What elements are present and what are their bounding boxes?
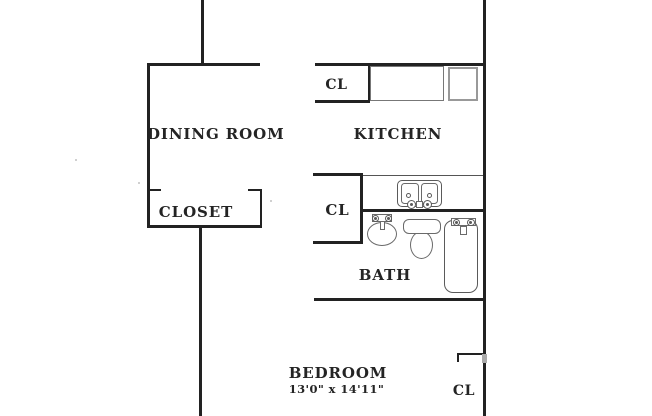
kitchen-sink-spout [416,201,423,208]
kitchen-sink-drain-left [406,193,411,198]
toilet-tank [403,219,441,234]
wall-bedroom-left [199,227,202,416]
floor-plan: DINING ROOM KITCHEN CL CLOSET CL BATH BE… [0,0,652,416]
wall-top-stub [201,0,204,65]
closet-label: CLOSET [146,205,246,220]
bath-closet-label: CL [322,203,353,218]
kitchen-sink-faucet-knob-right [423,200,432,209]
closet-wall-right [260,189,263,228]
closet-wall-bottom [147,225,262,228]
kitchen-sink-faucet-knob-left [407,200,416,209]
bedroom-closet-label: CL [449,384,479,398]
closet-door-jamb-left [147,189,161,191]
kitchen-counter-front-edge [362,175,483,177]
kitchen-sink-drain-right [427,193,432,198]
dining-room-label: DINING ROOM [147,127,267,142]
bath-closet-wall-bottom [313,241,363,244]
scan-speck [270,200,272,202]
wall-kitchen-bath-divider [360,209,485,212]
kitchen-label: KITCHEN [348,127,448,142]
wall-dining-top [147,63,260,66]
bedroom-closet-door-jamb [457,353,459,362]
kitchen-counter [370,66,444,101]
bath-closet-wall-right [360,173,363,243]
lavatory-faucet-knob-right [385,215,392,222]
toilet-bowl [410,231,433,259]
bathtub-faucet-knob-right [467,219,475,227]
kitchen-closet-label: CL [321,78,352,92]
lavatory-spout [380,221,386,230]
wall-dining-left [147,63,150,228]
bathtub-spout [460,226,467,236]
bath-label: BATH [345,268,425,283]
appliance [448,67,478,101]
scan-speck [75,159,77,161]
bedroom-closet-wall-top [457,353,484,355]
scan-speck [138,182,140,184]
bedroom-closet-wall-jamb-gray [482,354,487,363]
lavatory-faucet-knob-left [372,215,379,222]
wall-bath-bottom [314,298,485,301]
kitchen-closet-wall-bottom [315,100,370,103]
bath-closet-wall-top [313,173,363,176]
bedroom-label: BEDROOM [288,366,388,381]
bedroom-dimensions: 13'0" x 14'11" [286,384,387,396]
